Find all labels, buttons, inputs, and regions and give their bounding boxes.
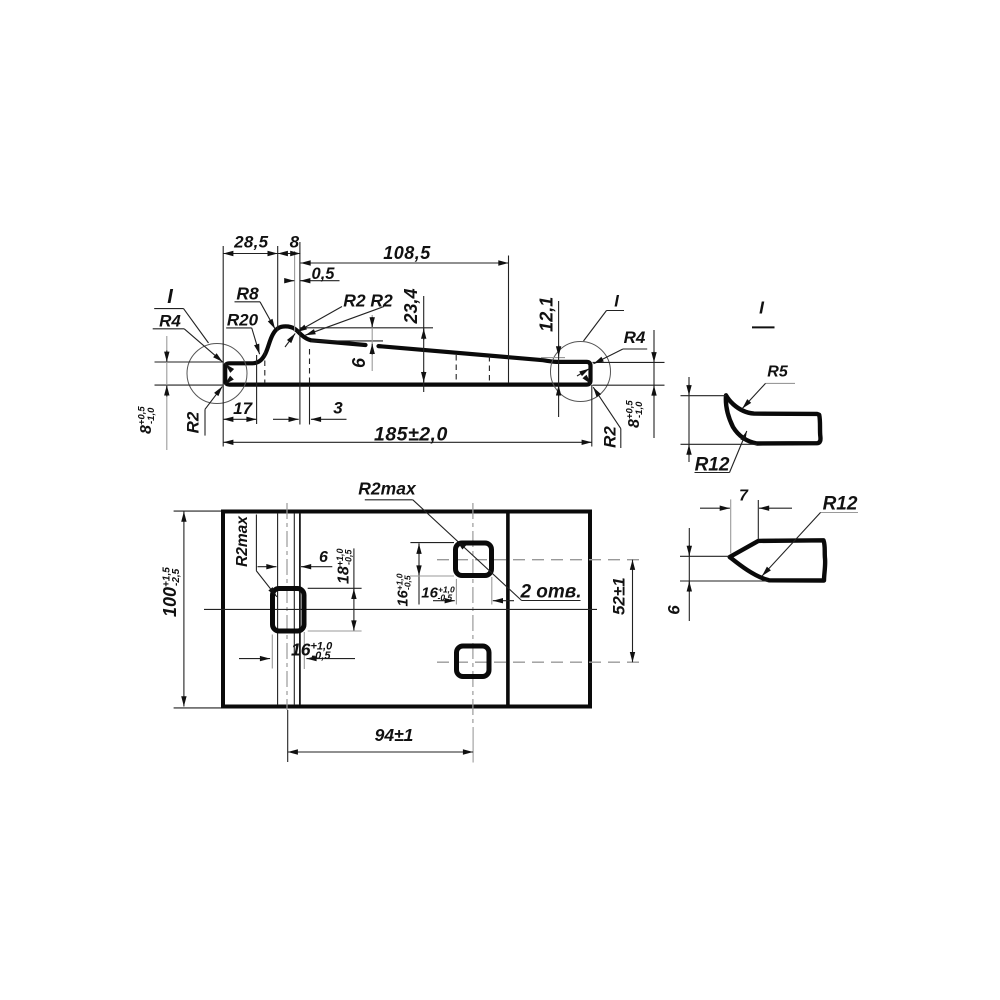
svg-text:8+0,5-1,0: 8+0,5-1,0 <box>625 400 646 428</box>
svg-text:100+1,5-2,5: 100+1,5-2,5 <box>160 567 182 617</box>
svg-text:7: 7 <box>739 488 749 505</box>
svg-text:R20: R20 <box>227 311 259 330</box>
svg-text:6: 6 <box>665 605 684 615</box>
svg-text:28,5: 28,5 <box>233 232 269 251</box>
svg-text:17: 17 <box>233 399 253 418</box>
svg-text:8: 8 <box>290 232 300 251</box>
svg-text:16+1,0-0,5: 16+1,0-0,5 <box>421 585 455 603</box>
svg-text:R4: R4 <box>159 312 181 331</box>
svg-text:3: 3 <box>333 399 343 418</box>
svg-text:16+1,0-0,5: 16+1,0-0,5 <box>291 640 333 663</box>
svg-text:8+0,5-1,0: 8+0,5-1,0 <box>137 406 158 434</box>
svg-text:0,5: 0,5 <box>312 265 336 283</box>
svg-text:185±2,0: 185±2,0 <box>374 423 448 445</box>
svg-text:I: I <box>614 293 619 311</box>
svg-text:52±1: 52±1 <box>610 577 629 615</box>
svg-text:I: I <box>167 286 173 308</box>
svg-text:R2: R2 <box>601 426 620 448</box>
svg-text:94±1: 94±1 <box>375 725 414 745</box>
svg-text:R4: R4 <box>624 328 646 347</box>
svg-text:2 отв.: 2 отв. <box>519 582 581 603</box>
svg-text:16+1,0-0,5: 16+1,0-0,5 <box>395 573 413 606</box>
svg-text:18+1,0-0,5: 18+1,0-0,5 <box>335 548 354 584</box>
svg-text:R5: R5 <box>767 364 789 381</box>
svg-text:R2 R2: R2 R2 <box>343 290 393 310</box>
svg-text:R2: R2 <box>184 411 203 433</box>
svg-text:R8: R8 <box>236 284 259 304</box>
svg-text:108,5: 108,5 <box>383 243 431 263</box>
svg-text:R12: R12 <box>823 494 858 515</box>
svg-text:12,1: 12,1 <box>537 297 557 332</box>
svg-text:R2max: R2max <box>358 479 417 499</box>
svg-text:6: 6 <box>319 549 328 566</box>
svg-text:6: 6 <box>349 357 369 368</box>
svg-text:R2max: R2max <box>234 515 251 567</box>
svg-text:23,4: 23,4 <box>401 288 421 324</box>
